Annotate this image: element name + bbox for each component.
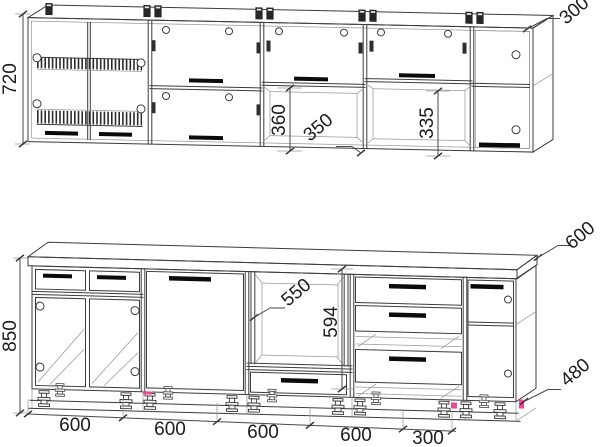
base-cabinets-row	[28, 242, 537, 422]
dim-width-5: 300	[412, 428, 444, 447]
dim-open-niche-height-label: 335	[417, 107, 438, 139]
drawing-canvas: 720 360 335 350 300 850 594 550	[0, 0, 600, 447]
base-end-cabinet	[468, 280, 536, 398]
dim-upper-height-label: 720	[0, 63, 21, 95]
base-cabinet-tall-front-panel	[147, 271, 244, 390]
dim-width-4: 600	[340, 425, 372, 446]
base-cabinet-doors-drawers	[32, 269, 143, 388]
dim-niche-height-label: 594	[321, 306, 342, 338]
plinth-and-feet	[28, 383, 536, 422]
dim-niche-depth-label: 550	[278, 275, 316, 311]
worktop	[28, 242, 537, 280]
dim-width-2: 600	[154, 419, 186, 440]
dim-door-section-height-label: 360	[269, 104, 290, 136]
dim-worktop-depth-label: 600	[562, 218, 600, 254]
dim-width-3: 600	[247, 422, 279, 443]
upper-cabinet-dish-rack	[33, 21, 145, 140]
upper-end-open-shelf-unit	[472, 30, 553, 149]
dim-base-height-label: 850	[0, 320, 21, 352]
kitchen-technical-drawing: 720 360 335 350 300 850 594 550	[0, 0, 600, 447]
dim-cabinet-depth-label: 350	[300, 110, 338, 146]
upper-cabinet-two-flip-doors	[150, 26, 262, 141]
dim-end-unit-depth-label: 480	[557, 355, 595, 391]
base-cabinet-three-drawers	[356, 277, 462, 399]
dim-end-unit-width-label: 300	[556, 0, 594, 29]
dim-width-1: 600	[59, 415, 91, 436]
